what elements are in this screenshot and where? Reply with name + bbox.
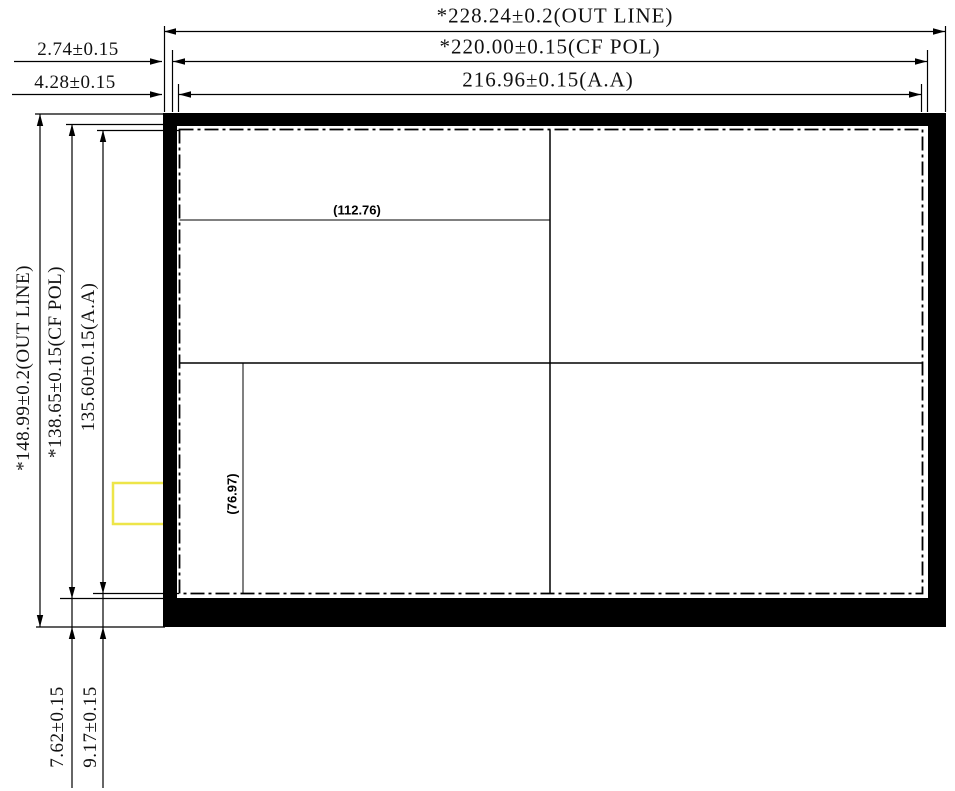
dim-aa-offset-bottom-label: 9.17±0.15	[80, 686, 102, 767]
ref-vertical-label: (76.97)	[225, 473, 240, 514]
dim-aa-width-label: 216.96±0.15(A.A)	[462, 68, 634, 93]
drawing-canvas	[0, 0, 955, 791]
dim-cf-offset-bottom-label: 7.62±0.15	[47, 686, 69, 767]
ref-horizontal-label: (112.76)	[333, 203, 381, 218]
panel-inner-area	[177, 126, 928, 598]
dim-cf-pol-height-label: *138.65±0.15(CF POL)	[45, 266, 67, 458]
dim-cf-offset-left-label: 2.74±0.15	[37, 39, 118, 61]
dim-aa-offset-left-label: 4.28±0.15	[34, 72, 115, 94]
highlight-connector-box	[113, 483, 165, 524]
technical-drawing: *228.24±0.2(OUT LINE) *220.00±0.15(CF PO…	[0, 0, 955, 791]
dim-cf-pol-width-label: *220.00±0.15(CF POL)	[439, 35, 660, 60]
dim-outline-height-label: *148.99±0.2(OUT LINE)	[13, 265, 35, 471]
dim-outline-width-label: *228.24±0.2(OUT LINE)	[437, 4, 674, 29]
dim-aa-height-label: 135.60±0.15(A.A)	[78, 283, 100, 432]
